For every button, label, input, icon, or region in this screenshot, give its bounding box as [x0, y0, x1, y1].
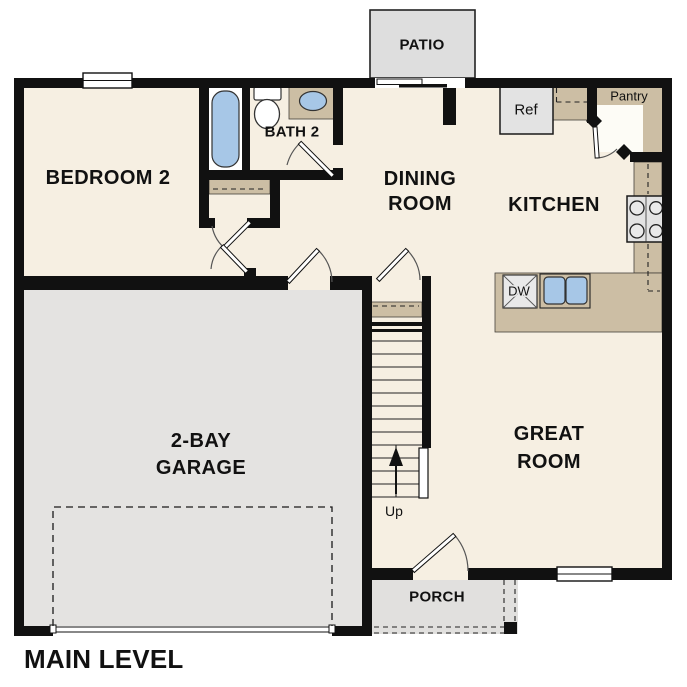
stove-burner — [650, 225, 663, 238]
garage-label-line2: GARAGE — [156, 457, 246, 479]
refrigerator-label: Ref — [514, 102, 538, 119]
kitchen-label: KITCHEN — [508, 194, 600, 216]
stove-burner — [630, 201, 644, 215]
wall-segment — [14, 78, 24, 636]
pantry-floor — [597, 105, 643, 152]
garage-door — [50, 625, 335, 636]
wall-segment — [14, 626, 53, 636]
floor-plan-drawing: BEDROOM 2 BATH 2 DINING ROOM KITCHEN GRE… — [0, 0, 687, 687]
great-room-label-line1: GREAT — [514, 423, 585, 445]
plan-title: MAIN LEVEL — [24, 644, 183, 674]
garage-label-line1: 2-BAY — [171, 430, 231, 452]
stair-riser — [370, 329, 422, 332]
wall-segment — [14, 78, 375, 88]
toilet-tank — [254, 87, 281, 100]
wall-segment — [14, 276, 288, 290]
wall-segment — [443, 82, 456, 125]
porch-post — [504, 622, 517, 634]
bathroom-sink — [300, 92, 327, 111]
floor-plan: BEDROOM 2 BATH 2 DINING ROOM KITCHEN GRE… — [0, 0, 687, 687]
stair-riser — [370, 322, 422, 326]
wall-segment — [465, 78, 672, 88]
wall-segment — [332, 626, 372, 636]
patio-label: PATIO — [399, 37, 444, 54]
bedroom-window — [83, 73, 132, 88]
pantry-shelf-side — [643, 105, 662, 152]
wall-segment — [199, 88, 209, 173]
great-room-window — [557, 567, 612, 581]
stair-handrail — [419, 448, 428, 498]
bedroom-closet-shelf — [209, 178, 270, 194]
stove-burner — [650, 202, 663, 215]
dining-room-label-line2: ROOM — [388, 193, 452, 215]
wall-segment — [362, 276, 372, 636]
pantry-label: Pantry — [610, 89, 648, 104]
wall-segment — [630, 152, 672, 162]
wall-segment — [242, 88, 250, 172]
dining-room-label-line1: DINING — [384, 168, 456, 190]
wall-segment — [247, 218, 280, 228]
kitchen-sink — [540, 274, 590, 308]
cabinet-beside-ref — [553, 86, 591, 120]
wall-segment — [333, 88, 343, 145]
dishwasher-label: DW — [508, 284, 530, 299]
great-room-label-line2: ROOM — [517, 451, 581, 473]
patio-sliding-door — [375, 78, 465, 88]
bedroom2-label: BEDROOM 2 — [46, 167, 171, 189]
bath2-label: BATH 2 — [265, 124, 320, 141]
stairs-up-label: Up — [385, 503, 403, 519]
bathtub — [212, 91, 239, 167]
stove-burner — [630, 224, 644, 238]
porch-label: PORCH — [409, 589, 465, 606]
wall-segment — [422, 276, 431, 448]
stair-closet-shelf — [370, 302, 422, 317]
